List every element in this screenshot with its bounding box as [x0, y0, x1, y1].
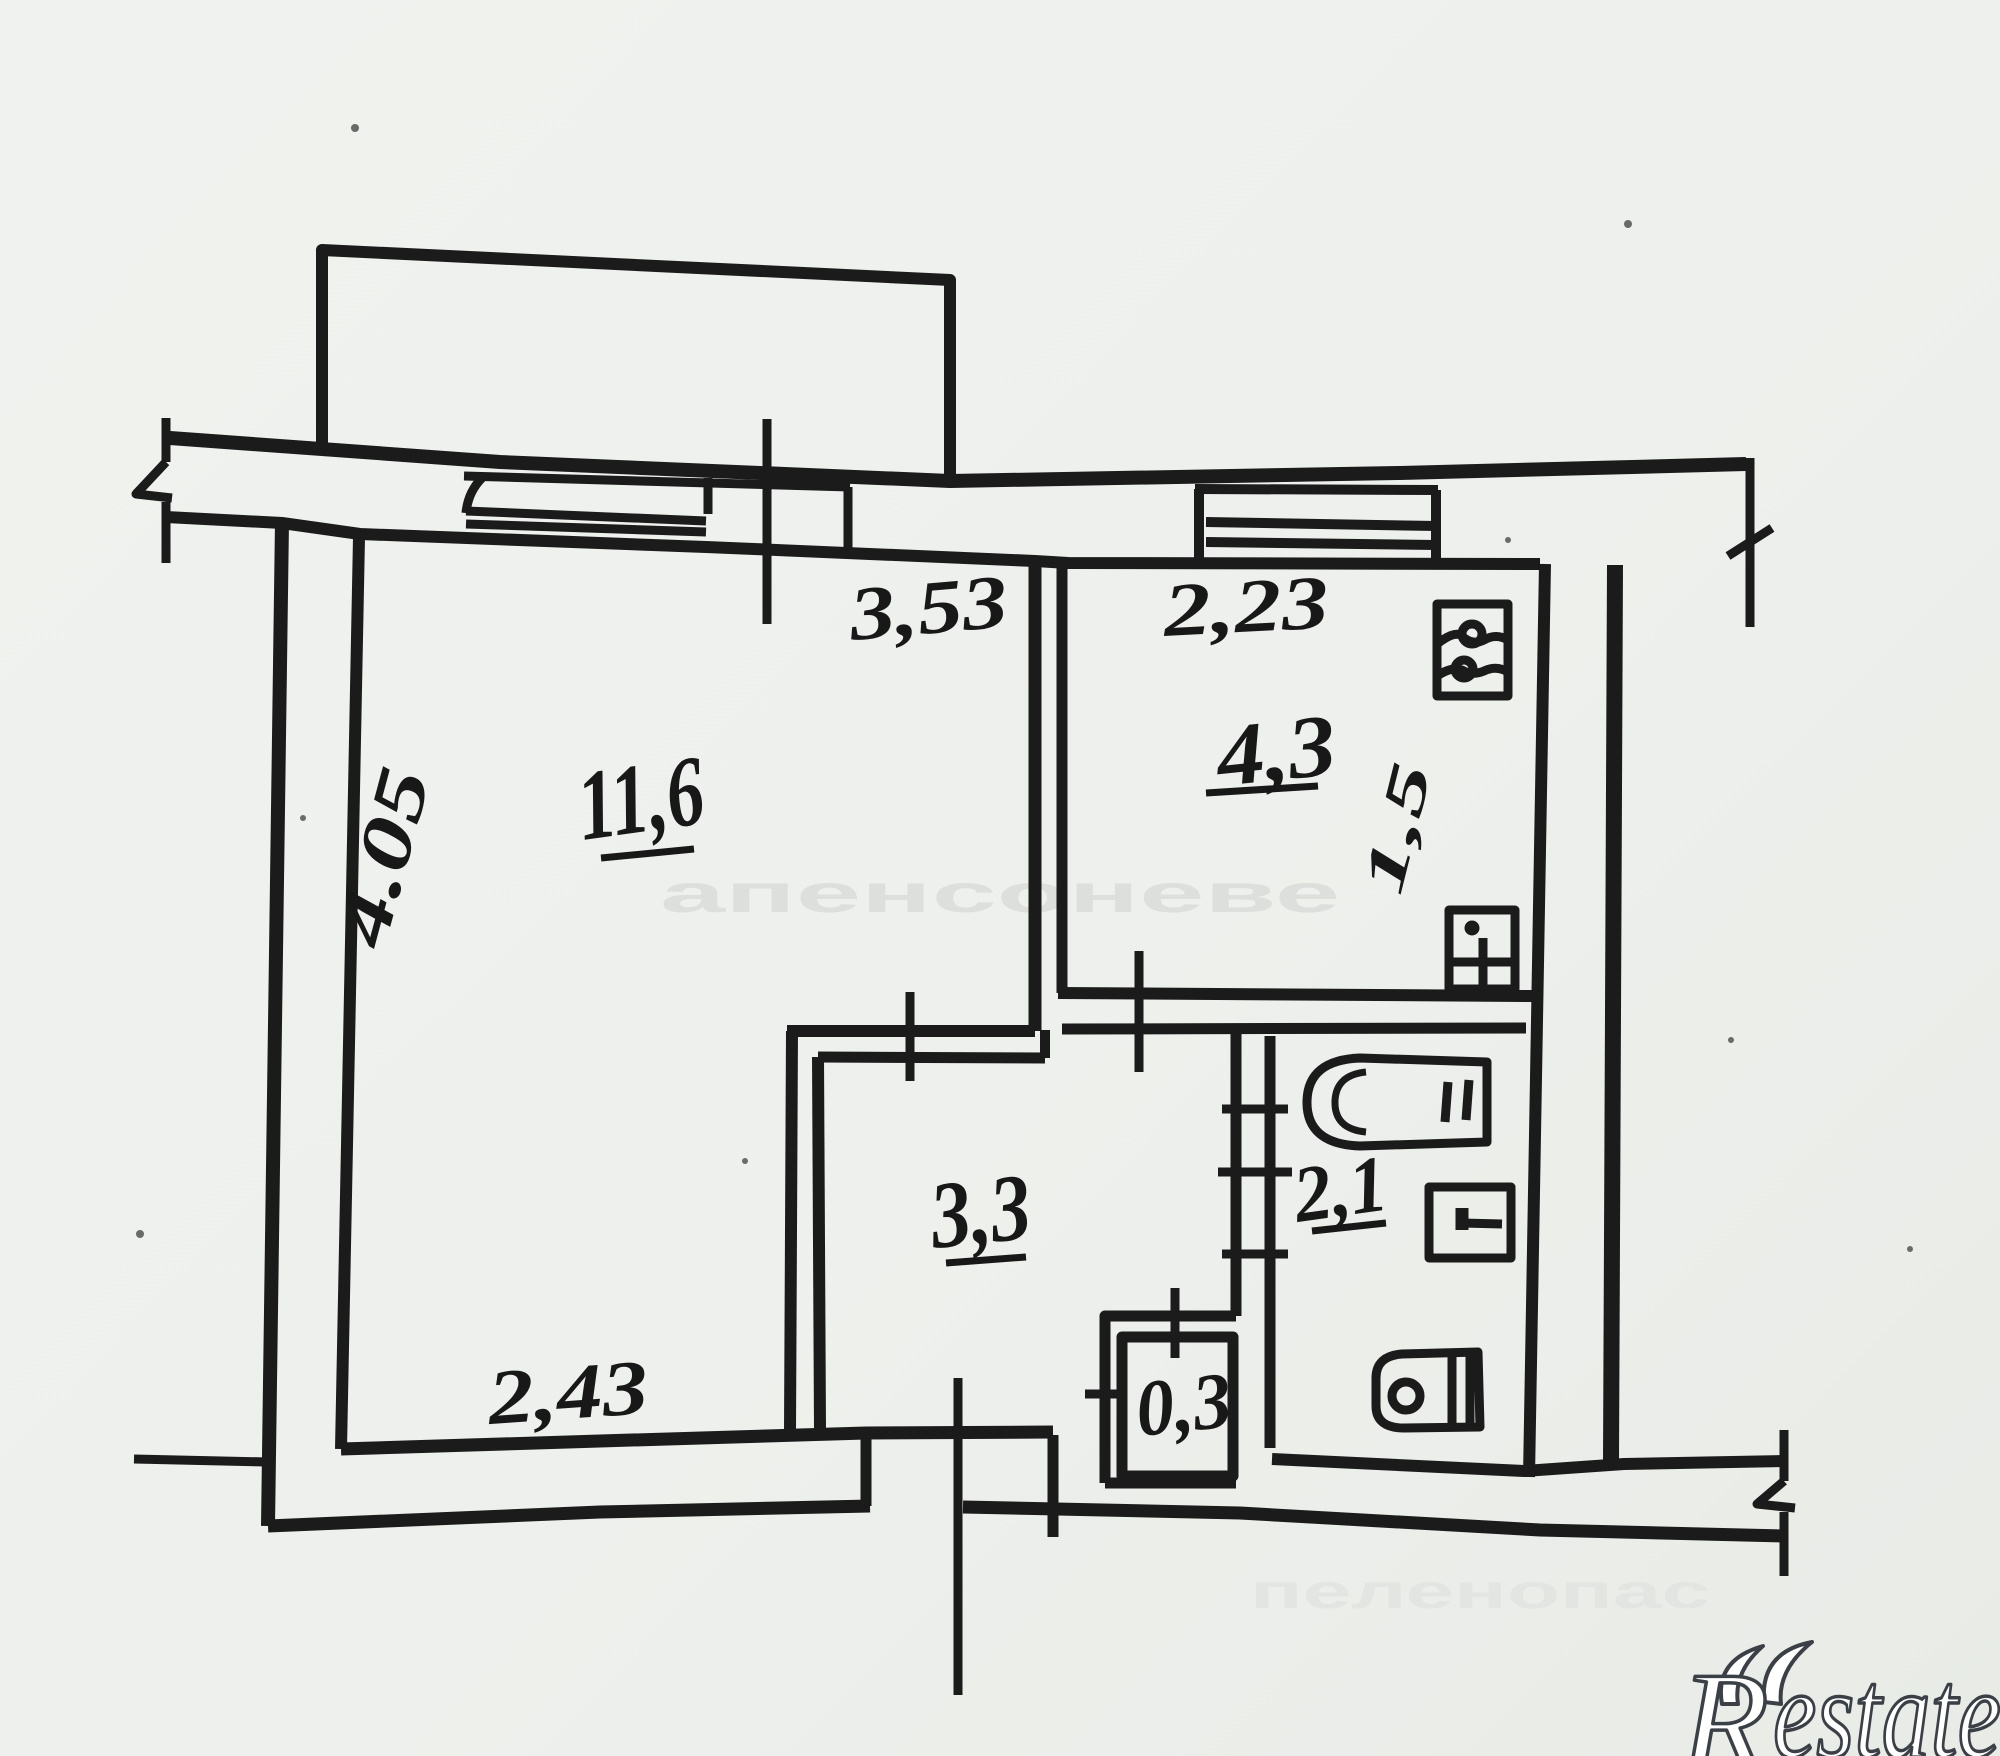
svg-text:апенсоневе: апенсоневе [660, 864, 1340, 924]
svg-text:4.05: 4.05 [320, 759, 447, 957]
svg-text:3,3: 3,3 [924, 1153, 1035, 1269]
svg-text:2,43: 2,43 [484, 1343, 651, 1441]
svg-text:estate: estate [1773, 1643, 2000, 1756]
svg-text:2,23: 2,23 [1160, 560, 1330, 653]
svg-text:11,6: 11,6 [571, 734, 711, 861]
svg-text:0,3: 0,3 [1132, 1356, 1236, 1453]
svg-text:R: R [1679, 1642, 1769, 1756]
svg-text:1,5: 1,5 [1350, 756, 1445, 900]
svg-text:пеленопас: пеленопас [1250, 1566, 1710, 1619]
svg-text:3,53: 3,53 [845, 559, 1011, 657]
